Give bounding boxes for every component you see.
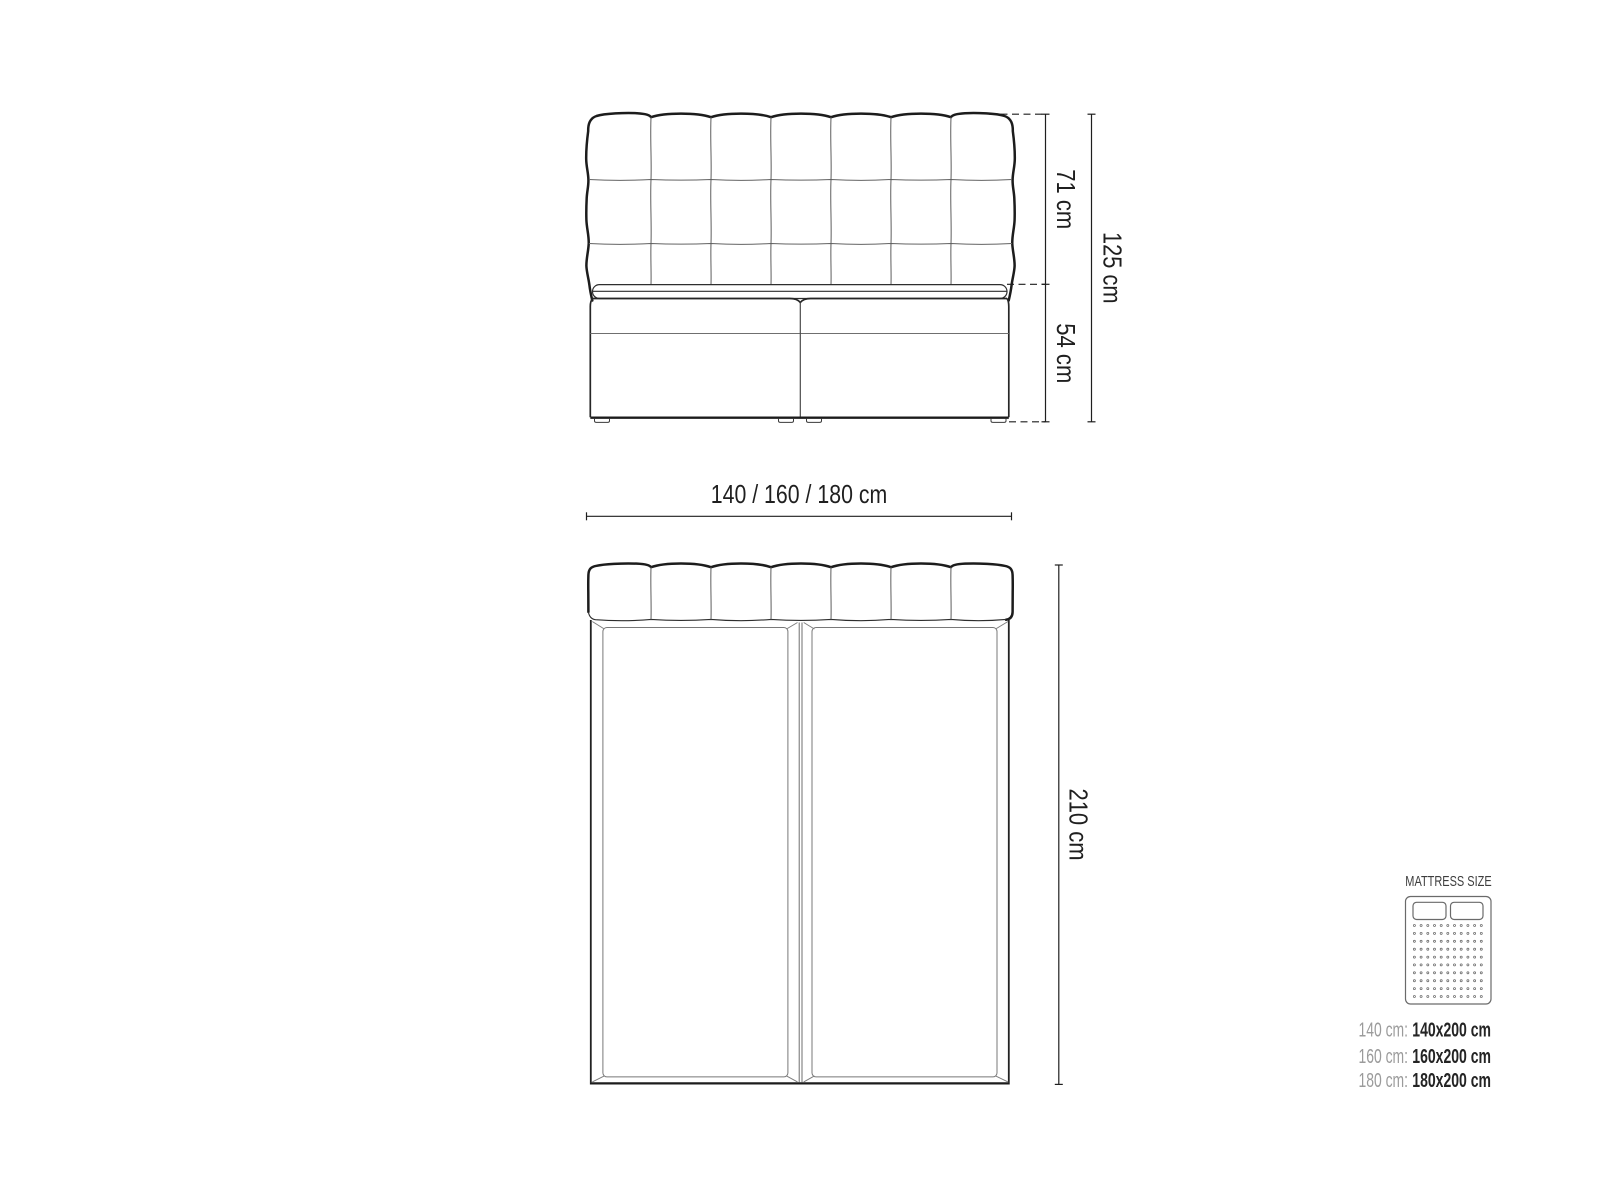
svg-text:180x200 cm: 180x200 cm (1412, 1070, 1491, 1092)
svg-text:71 cm: 71 cm (1051, 169, 1081, 229)
svg-text:160x200 cm: 160x200 cm (1412, 1046, 1491, 1068)
svg-text:180 cm:: 180 cm: (1359, 1070, 1409, 1092)
svg-text:MATTRESS SIZE: MATTRESS SIZE (1405, 874, 1492, 890)
svg-text:54 cm: 54 cm (1051, 323, 1081, 383)
svg-text:210 cm: 210 cm (1064, 789, 1094, 861)
svg-text:140x200 cm: 140x200 cm (1412, 1020, 1491, 1042)
svg-text:140 / 160 / 180 cm: 140 / 160 / 180 cm (711, 479, 888, 509)
svg-text:160 cm:: 160 cm: (1359, 1046, 1409, 1068)
svg-text:125 cm: 125 cm (1098, 232, 1128, 304)
svg-text:140 cm:: 140 cm: (1359, 1020, 1409, 1042)
